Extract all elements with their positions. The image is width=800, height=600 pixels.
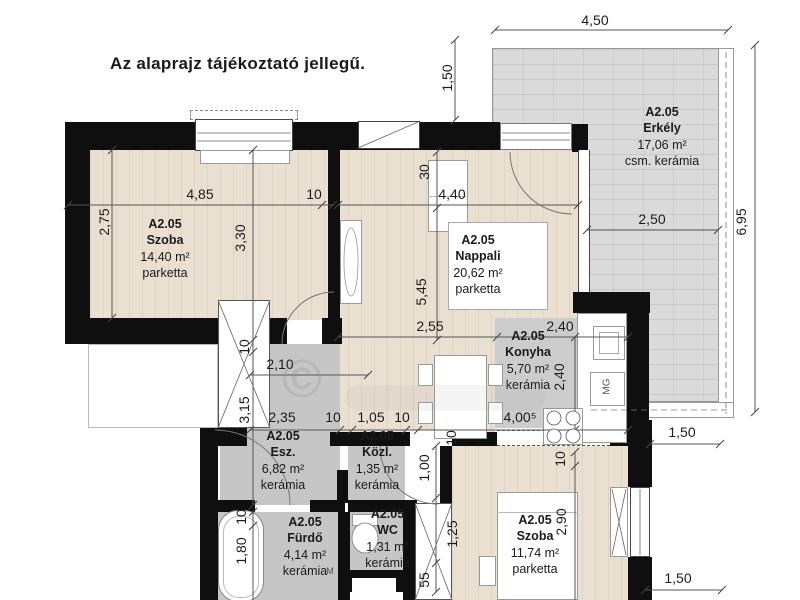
dim-label: 3,15 bbox=[236, 380, 252, 440]
dim-label: 2,40 bbox=[530, 318, 590, 334]
window-szoba2 bbox=[630, 487, 650, 557]
room-floor: csm. kerámia bbox=[602, 153, 722, 169]
wall-konyha-right bbox=[627, 292, 649, 445]
room-unit: A2.05 bbox=[345, 506, 430, 522]
dim-label: 2,40 bbox=[551, 347, 567, 407]
radiator bbox=[610, 487, 628, 557]
room-unit: A2.05 bbox=[602, 104, 722, 120]
sink-basin bbox=[599, 332, 619, 354]
chair bbox=[418, 364, 433, 386]
dim-label: 3,30 bbox=[232, 208, 248, 268]
dim-label: 10 bbox=[284, 186, 344, 202]
window-szoba1 bbox=[195, 119, 293, 151]
dim-label: 2,75 bbox=[96, 192, 112, 252]
room-area: 1,35 m² bbox=[337, 461, 417, 477]
room-name: WC bbox=[345, 522, 430, 538]
dim-label: 2,55 bbox=[400, 318, 460, 334]
room-area: 11,74 m² bbox=[480, 545, 590, 561]
wall-left-lower bbox=[200, 428, 218, 600]
dim-label: 1,50 bbox=[648, 570, 708, 586]
dim-label: 1,80 bbox=[233, 521, 249, 581]
room-label-erkely: A2.05 Erkély 17,06 m² csm. kerámia bbox=[602, 104, 722, 169]
room-label-furdo: A2.05 Fürdő 4,14 m² kerámia bbox=[255, 514, 355, 579]
room-floor: parketta bbox=[480, 561, 590, 577]
exterior-nook bbox=[88, 344, 218, 428]
dim-label: 10 bbox=[236, 317, 252, 377]
dim-label: 4,40 bbox=[422, 186, 482, 202]
radiator bbox=[340, 220, 362, 304]
dim-label: 1,25 bbox=[444, 504, 460, 564]
room-floor: parketta bbox=[418, 281, 538, 297]
window-wall-balcony bbox=[578, 150, 590, 292]
window-nappali bbox=[358, 121, 420, 149]
wc-bottom-inset bbox=[352, 578, 396, 600]
room-unit: A2.05 bbox=[255, 514, 355, 530]
watermark-text-blur bbox=[345, 385, 545, 411]
room-unit: A2.05 bbox=[105, 216, 225, 232]
page-title: Az alaprajz tájékoztató jellegű. bbox=[110, 54, 365, 74]
room-area: 20,62 m² bbox=[418, 265, 538, 281]
room-label-nappali: A2.05 Nappali 20,62 m² parketta bbox=[418, 232, 538, 297]
wall-stub bbox=[322, 318, 342, 344]
room-area: 6,82 m² bbox=[233, 461, 333, 477]
room-name: Nappali bbox=[418, 248, 538, 264]
room-area: 4,14 m² bbox=[255, 547, 355, 563]
room-unit: A2.05 bbox=[337, 428, 417, 444]
room-area: 14,40 m² bbox=[105, 249, 225, 265]
dim-label: 4,00⁵ bbox=[490, 409, 550, 425]
dim-label: 55 bbox=[416, 550, 432, 600]
dim-label: 4,85 bbox=[170, 186, 230, 202]
dim-label: 1,00 bbox=[416, 438, 432, 498]
dim-label: 10 bbox=[552, 429, 568, 489]
wall-left bbox=[65, 122, 90, 344]
dim-label: 2,50 bbox=[622, 211, 682, 227]
dim-label: 10 bbox=[443, 408, 459, 468]
dim-label: 4,50 bbox=[565, 12, 625, 28]
watermark-icon: © bbox=[282, 348, 322, 410]
room-name: Szoba bbox=[105, 232, 225, 248]
room-name: Szoba bbox=[480, 528, 590, 544]
room-unit: A2.05 bbox=[480, 512, 590, 528]
washing-machine-label: MG bbox=[602, 369, 613, 405]
room-name: Esz. bbox=[233, 444, 333, 460]
dim-label: 2,90 bbox=[553, 492, 569, 552]
room-floor: kerámia bbox=[337, 477, 417, 493]
basin-label: M bbox=[320, 566, 340, 576]
room-name: Erkély bbox=[602, 120, 722, 136]
room-unit: A2.05 bbox=[418, 232, 538, 248]
wall-pillar bbox=[572, 124, 588, 152]
room-floor: kerámia bbox=[255, 563, 355, 579]
dim-label: 1,50 bbox=[652, 424, 712, 440]
room-name: Fürdő bbox=[255, 530, 355, 546]
dim-label: 5,45 bbox=[413, 262, 429, 322]
room-floor: parketta bbox=[105, 265, 225, 281]
room-area: 17,06 m² bbox=[602, 137, 722, 153]
balcony-door bbox=[500, 123, 572, 150]
room-label-szoba2: A2.05 Szoba 11,74 m² parketta bbox=[480, 512, 590, 577]
dim-label: 10 bbox=[372, 409, 432, 425]
dim-label: 1,50 bbox=[439, 48, 455, 108]
wall-divider bbox=[328, 148, 340, 320]
dim-label: 6,95 bbox=[733, 192, 749, 252]
radiator bbox=[200, 150, 290, 164]
room-label-kozl: A2.05 Közl. 1,35 m² kerámia bbox=[337, 428, 417, 493]
room-label-szoba1: A2.05 Szoba 14,40 m² parketta bbox=[105, 216, 225, 281]
room-name: Közl. bbox=[337, 444, 417, 460]
floorplan-canvas: Az alaprajz tájékoztató jellegű. A2.05 S… bbox=[0, 0, 800, 600]
